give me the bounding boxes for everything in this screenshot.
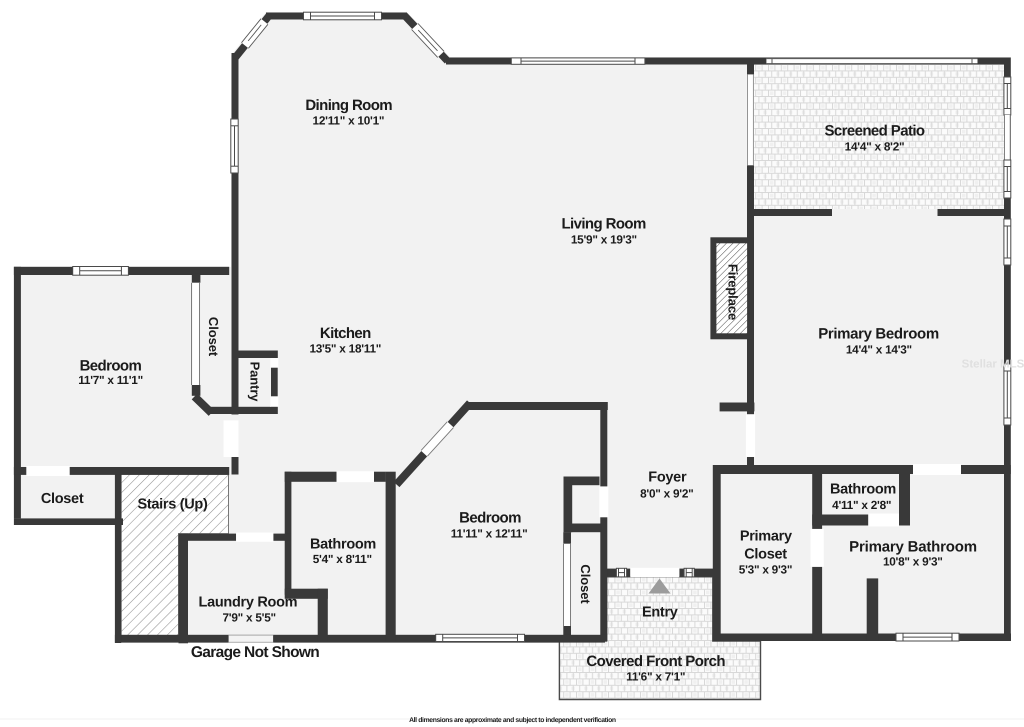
svg-text:8'0" x 9'2": 8'0" x 9'2" [640, 487, 693, 501]
svg-text:15'9" x 19'3": 15'9" x 19'3" [571, 232, 637, 246]
svg-text:11'6" x 7'1": 11'6" x 7'1" [626, 670, 685, 684]
svg-text:All dimensions are approximate: All dimensions are approximate and subje… [409, 717, 616, 724]
svg-text:10'8" x 9'3": 10'8" x 9'3" [883, 554, 943, 568]
svg-text:Stellar MLS: Stellar MLS [962, 359, 1024, 371]
svg-text:4'11" x 2'8": 4'11" x 2'8" [832, 498, 891, 512]
svg-text:7'9" x 5'5": 7'9" x 5'5" [222, 610, 275, 624]
svg-text:13'5" x 18'11": 13'5" x 18'11" [309, 342, 381, 356]
svg-text:Bedroom: Bedroom [80, 358, 142, 375]
svg-text:11'7" x 11'1": 11'7" x 11'1" [78, 373, 143, 387]
svg-text:Covered Front Porch: Covered Front Porch [586, 653, 725, 670]
svg-text:Dining Room: Dining Room [305, 97, 392, 114]
svg-text:Entry: Entry [642, 604, 678, 620]
svg-text:Garage Not Shown: Garage Not Shown [191, 644, 319, 661]
svg-text:Screened Patio: Screened Patio [825, 122, 925, 139]
svg-text:Fireplace: Fireplace [725, 264, 740, 320]
svg-text:14'4" x 14'3": 14'4" x 14'3" [846, 343, 912, 357]
svg-text:Closet: Closet [744, 547, 787, 563]
svg-text:Primary: Primary [740, 529, 792, 545]
svg-text:Bathroom: Bathroom [830, 482, 896, 498]
svg-text:Laundry Room: Laundry Room [199, 595, 298, 611]
svg-text:5'4" x 8'11": 5'4" x 8'11" [313, 552, 372, 566]
svg-text:Living Room: Living Room [561, 216, 645, 233]
svg-text:11'11" x 12'11": 11'11" x 12'11" [451, 527, 528, 541]
svg-text:Bathroom: Bathroom [310, 536, 376, 552]
svg-text:Closet: Closet [41, 491, 84, 507]
svg-text:Primary Bathroom: Primary Bathroom [849, 539, 977, 556]
svg-text:12'11" x 10'1": 12'11" x 10'1" [313, 114, 385, 128]
svg-text:Closet: Closet [206, 317, 221, 357]
svg-text:5'3" x 9'3": 5'3" x 9'3" [739, 562, 792, 576]
svg-text:Pantry: Pantry [248, 362, 263, 403]
svg-text:Closet: Closet [578, 564, 593, 604]
svg-text:Bedroom: Bedroom [459, 510, 521, 527]
svg-text:14'4" x 8'2": 14'4" x 8'2" [845, 140, 905, 154]
svg-text:Kitchen: Kitchen [320, 325, 371, 342]
svg-text:Foyer: Foyer [648, 470, 687, 486]
svg-text:Primary Bedroom: Primary Bedroom [818, 326, 939, 343]
svg-text:Stairs (Up): Stairs (Up) [137, 497, 207, 513]
